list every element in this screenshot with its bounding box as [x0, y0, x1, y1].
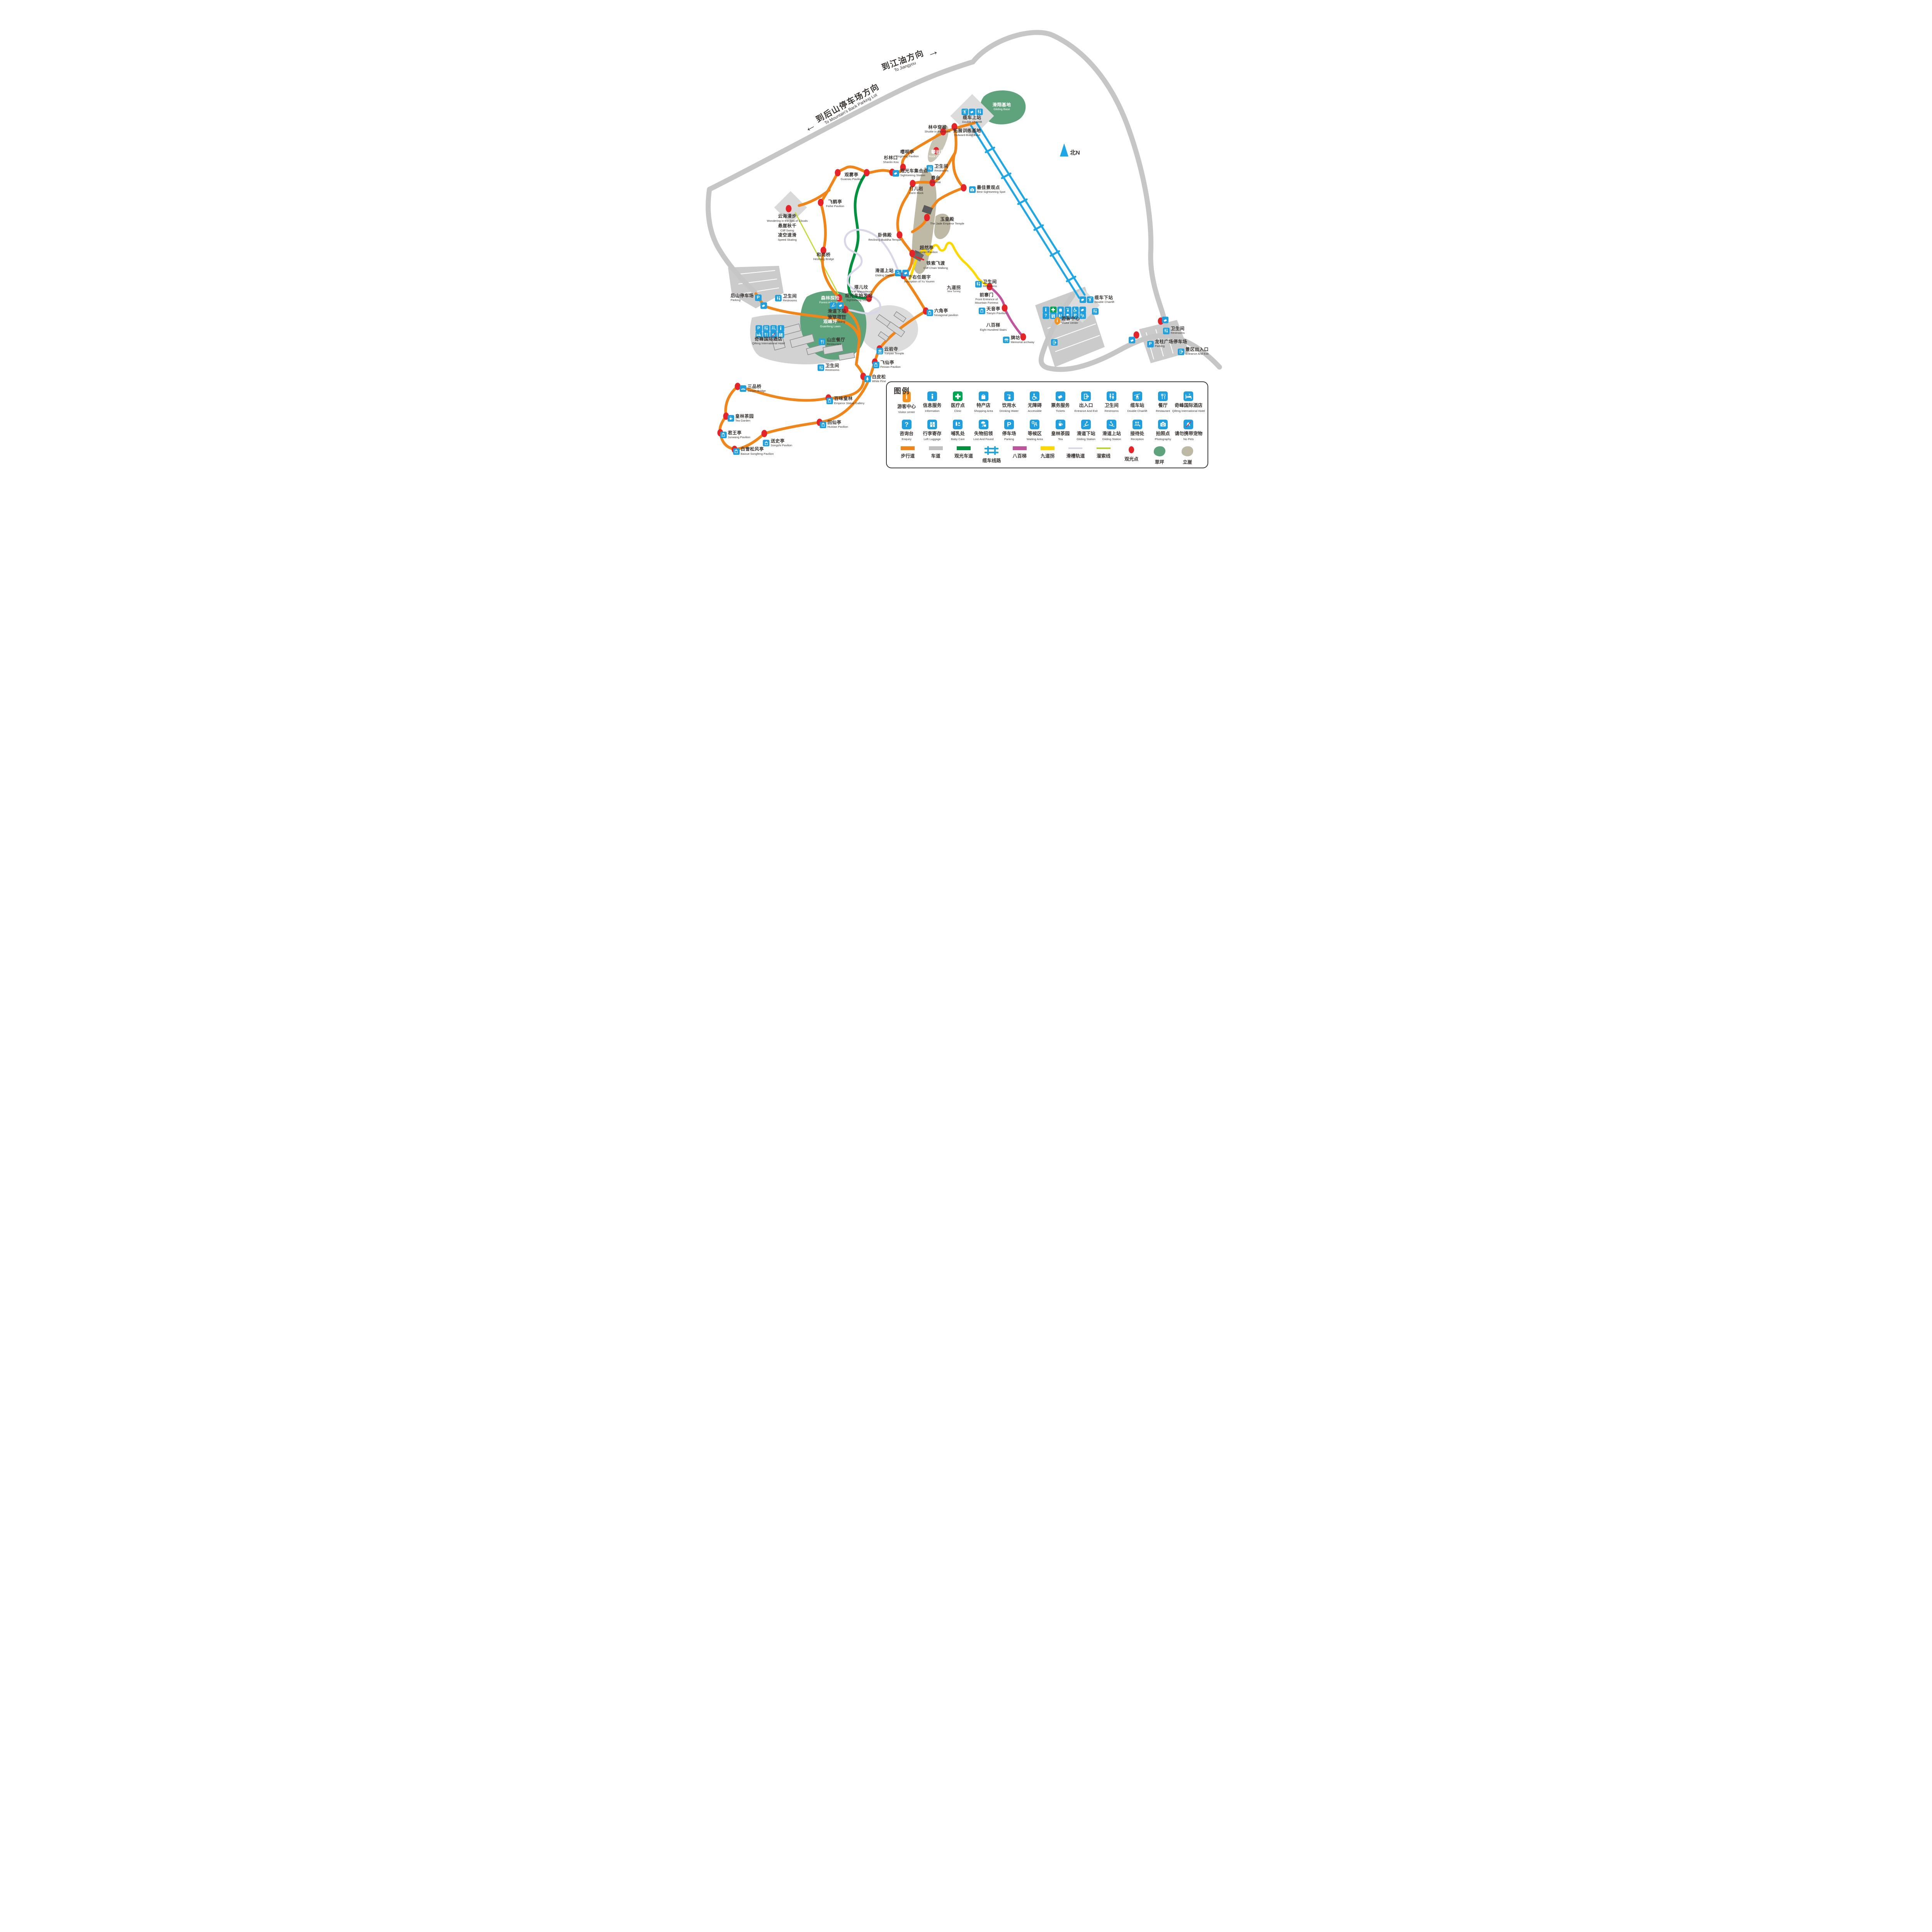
legend-item-cn: 请勿携带宠物 — [1175, 430, 1202, 437]
wc-icon — [775, 295, 782, 301]
legend-item-en: Gliding Station — [1077, 437, 1095, 441]
poi-text: 卫生间 Restrooms — [983, 280, 997, 288]
restrooms-longzhu: 卫生间 Restrooms — [1163, 327, 1185, 335]
legend-item-icon — [1133, 391, 1142, 401]
poi-icons — [775, 295, 782, 301]
legend-route-cn: 立崖 — [1183, 459, 1192, 465]
poi-label-en: Nine Turning — [947, 291, 961, 293]
poi-text: 前寨门 Front Entrance of Mountain Fortress — [975, 293, 998, 304]
poi-icons — [820, 422, 826, 428]
poi-text: 天音亭 Tianyin Pavilion — [986, 307, 1007, 315]
babycare-icon — [953, 420, 963, 429]
qifeng-international-hotel: 奇峰国际酒店 Qifeng International Hotel — [752, 337, 785, 345]
tea-garden: 皇林茶园 Tea Garden — [728, 414, 754, 423]
poi-text: 打儿岩 Da'er Rock — [909, 187, 923, 195]
poi-icons — [1003, 337, 1010, 344]
legend-drinking-water: 饮用水 Drinking Water — [996, 391, 1022, 413]
legend-item-icon — [1081, 420, 1091, 429]
legend-item-en: Entrance And Exit — [1075, 409, 1098, 413]
restrooms-nine-turning: 卫生间 Restrooms — [975, 280, 997, 288]
poi-text: 皇林茶园 Tea Garden — [735, 414, 754, 423]
legend-item-en: Left Luggage — [924, 437, 941, 441]
poi-text: 百味皇林 Emperor Statue Gallery — [834, 396, 864, 405]
pavilion-icon — [763, 440, 770, 446]
poi-label-en2: Mountain Fortress — [975, 301, 998, 305]
info-icon — [777, 325, 784, 332]
cliff-swing: 悬崖秋千 Cliff Swing — [778, 224, 796, 233]
sightseeing-spot-dot — [910, 250, 915, 257]
poi-icons — [763, 440, 770, 446]
legend-parking: P 停车场 Parking — [996, 420, 1022, 441]
feihe-pavilion: 飞鹤亭 Feihe Pavilion — [826, 200, 844, 208]
legend-item-icon — [1056, 391, 1065, 401]
legend-item-en: Double Chairlift — [1128, 409, 1147, 413]
legend-waiting-area: 等候区 Waiting Area — [1022, 420, 1048, 441]
poi-icons — [733, 448, 740, 455]
legend-accessible: 无障碍 Accessible — [1022, 391, 1048, 413]
ticket-back-parking — [760, 302, 768, 309]
poi-text: 卫生间 Restrooms — [934, 164, 948, 173]
legend-route-swatch — [1129, 446, 1134, 453]
poi-text: 和尚桥 Heshang Bridge — [813, 253, 834, 261]
clinic-icon — [953, 391, 963, 401]
poi-label-en: Cliff Chain Walking — [923, 267, 948, 270]
poi-text: 牌坊 Memorial archway — [1011, 336, 1034, 344]
longzhu-square-parking: P 龙柱广场停车场 Parking — [1147, 340, 1187, 348]
poi-icons — [720, 432, 726, 438]
poi-label-en: Outward-Bund Base — [954, 134, 980, 137]
white-pine: 白皮松 White Pine — [864, 375, 886, 383]
poi-text: 卫生间 Restrooms — [825, 364, 839, 372]
legend-item-cn: 滑道上站 — [1102, 430, 1121, 437]
poi-text: 铁索飞渡 Cliff Chain Walking — [923, 261, 948, 270]
poi-text: 飞仙亭 Feixian Pavilion — [880, 361, 901, 369]
legend-left-luggage: 行李寄存 Left Luggage — [919, 420, 945, 441]
chairlift-icon — [1087, 296, 1094, 303]
guanfeng-lawn: 观峰坪 Guanfeng Lawn — [820, 320, 840, 328]
legend-route-cn: 溜索线 — [1097, 452, 1111, 459]
poi-label-en: Qifeng International Hotel — [752, 342, 785, 345]
sightseeing-spot-dot — [835, 169, 841, 177]
legend-sightseeing-spot: 观光点 — [1117, 446, 1145, 462]
legend-item-icon: ? — [902, 420, 912, 429]
legend-route-swatch — [1041, 446, 1054, 450]
sightseeing-spot-dot — [786, 205, 792, 213]
legend-item-icon — [1030, 420, 1039, 429]
poi-icons — [1092, 308, 1099, 315]
chuntai: 春台 Chuntai — [931, 176, 941, 184]
hotel-services-row-1: P — [755, 325, 785, 332]
tianyin-pavilion: 天音亭 Tianyin Pavilion — [979, 307, 1007, 315]
inscription-of-yu-youren: 于右任题字 Inscription of Yu Youren — [904, 275, 935, 284]
poi-label-en: Yingming Pavilion — [896, 155, 918, 158]
legend-photography: 拍照点 Photography — [1150, 420, 1175, 441]
legend-item-cn: 信息服务 — [923, 402, 942, 408]
poi-label-en: Huixian Pavilion — [827, 425, 848, 429]
sanpin-bridge: 三品桥 Sanpin Bridge — [740, 384, 766, 393]
emperor-statue-gallery: 百味皇林 Emperor Statue Gallery — [827, 396, 864, 405]
legend-shopping-area: 特产店 Shopping Area — [971, 391, 996, 413]
poi-label-en: Double Chairlift — [962, 121, 982, 124]
poi-label-en: Tianyin Pavilion — [986, 312, 1007, 315]
accessible-icon — [1030, 391, 1039, 401]
entrance-icon — [1051, 339, 1058, 346]
legend-item-icon — [979, 391, 988, 401]
legend-zipline: 溜索线 — [1090, 446, 1117, 459]
outward-bund-base: 拓展训练基地 Outward-Bund Base — [953, 129, 981, 137]
legend-gliding-upper: 滑道上站 Gliding Station — [1099, 420, 1124, 441]
legend-item-en: Baby Care — [951, 437, 964, 441]
wc-icon — [1163, 328, 1170, 334]
legend-item-en: Accessible — [1028, 409, 1042, 413]
poi-label-en: Reclining Buddha Temple — [868, 238, 901, 242]
poi-label-en: Rock Climbing — [929, 155, 947, 158]
poi-label-en: Visitor center — [1061, 321, 1080, 325]
sightseeing-road-path — [849, 172, 869, 298]
poi-label-en: Restrooms — [783, 299, 797, 303]
pavilion-icon — [927, 310, 933, 316]
legend-item-en: Clinic — [954, 409, 961, 413]
legend-item-en: No Pets — [1184, 437, 1194, 441]
poi-text: 攀岩场 Rock Climbing — [929, 150, 947, 158]
poi-label-en: Sightseeing Station — [900, 174, 928, 178]
legend: 图例 i 游客中心 Visitor center 信息服务 Informatio… — [886, 381, 1208, 468]
poi-label-en: Da'er Rock — [909, 192, 923, 195]
poi-text: 奇峰国际酒店 Qifeng International Hotel — [752, 337, 785, 345]
legend-item-en: Shopping Area — [974, 409, 993, 413]
junwang-pavilion: 君王亭 Junwang Pavilion — [720, 431, 750, 439]
double-chairlift-lower: 缆车下站 Double Chairlift — [1080, 296, 1114, 304]
reclining-buddha-temple: 卧佛殿 Reclining Buddha Temple — [868, 233, 901, 241]
poi-icons — [1129, 337, 1135, 344]
legend-restrooms: 卫生间 Restrooms — [1099, 391, 1124, 413]
poi-icons — [872, 362, 879, 368]
temple-icon — [876, 348, 883, 354]
wc-icon — [1092, 308, 1099, 315]
entrance-icon — [1178, 349, 1184, 355]
gliding-base: 滑翔基地 Gliding Base — [993, 103, 1011, 111]
legend-item-icon — [953, 391, 963, 401]
pavilion-icon — [827, 398, 833, 404]
front-entrance-fortress: 前寨门 Front Entrance of Mountain Fortress — [975, 293, 998, 304]
legend-item-en: Enquiry — [901, 437, 911, 441]
songshi-pavilion: 送史亭 Songshi Pavilion — [763, 439, 792, 447]
north-arrow-icon — [1060, 143, 1068, 156]
legend-route-swatch — [1154, 446, 1165, 456]
poi-label-en: Sanpin Bridge — [748, 389, 766, 393]
glidingup-icon — [895, 270, 902, 276]
sea-of-clouds-walk: 云海漫步 Wondering in the Sea of Clouds — [767, 214, 808, 223]
poi-label-en: Shanlin Kou — [883, 161, 898, 165]
memorial-archway: 牌坊 Memorial archway — [1003, 336, 1034, 344]
entrance-icon — [1081, 391, 1091, 401]
gliding-icon — [1081, 420, 1091, 429]
north-indicator: 北N — [1060, 143, 1080, 156]
ticket-icon — [893, 170, 899, 177]
legend-route-swatch — [901, 446, 915, 450]
legend-item-en: Drinking Water — [1000, 409, 1019, 413]
hexagonal-pavilion: 六角亭 hexagonal pavilion — [927, 309, 958, 317]
legend-item-cn: 奇峰国际酒店 — [1175, 402, 1202, 408]
restaurant-icon — [819, 339, 825, 345]
poi-text: 六角亭 hexagonal pavilion — [934, 309, 958, 317]
legend-nine-turning: 九道拐 — [1034, 446, 1061, 459]
poi-label-en: Restrooms — [934, 169, 948, 173]
legend-item-en: Visitor center — [898, 410, 915, 414]
best-sightseeing-spot: 最佳景观点 Best Sightseeing Spot — [969, 185, 1005, 194]
shopping-icon — [979, 391, 988, 401]
legend-tickets: 票务服务 Tickets — [1048, 391, 1073, 413]
legend-item-cn: 无障碍 — [1028, 402, 1042, 408]
ticket-longzhu-west — [1129, 337, 1136, 344]
chairlift-icon — [1133, 391, 1142, 401]
poi-text: 白皮松 White Pine — [872, 375, 886, 383]
poi-icons — [961, 109, 983, 115]
legend-item-en: Photography — [1155, 437, 1171, 441]
glidingup-icon — [1107, 420, 1116, 429]
north-label: 北N — [1070, 148, 1080, 156]
poi-text: 白雪松风亭 Baixue Songfeng Pavilion — [741, 447, 774, 456]
poi-label-en: Junwang Pavilion — [728, 436, 750, 439]
legend-route-cn: 八百梯 — [1013, 452, 1027, 459]
poi-label-en: Feihe Pavilion — [826, 205, 844, 208]
poi-text: 景区出入口 Entrance And Exit — [1185, 347, 1209, 356]
poi-label-en: Emperor Statue Gallery — [834, 402, 864, 405]
legend-enquiry: ? 咨询台 Enquiry — [894, 420, 919, 441]
poi-icons — [1163, 328, 1170, 334]
legend-item-cn: 哺乳处 — [951, 430, 965, 437]
legend-item-en: Tickets — [1056, 409, 1065, 413]
archway-icon — [1003, 337, 1010, 344]
parking-icon: P — [1004, 420, 1014, 429]
poi-icons: P — [755, 294, 762, 301]
ticket-icon — [837, 302, 844, 309]
restaurant-icon — [1158, 391, 1168, 401]
poi-icons — [927, 310, 933, 316]
ticket-icon — [760, 302, 767, 309]
legend-item-icon — [1158, 391, 1168, 401]
legend-route-swatch — [1013, 446, 1027, 450]
ticket-icon — [969, 109, 975, 115]
legend-services-row-1: i 游客中心 Visitor center 信息服务 Information 医… — [894, 391, 1201, 414]
legend-chute-track: 滑槽轨道 — [1061, 446, 1089, 459]
poi-label-en: Memorial archway — [1011, 341, 1034, 344]
legend-sightseeing-road: 观光车道 — [950, 446, 978, 459]
legend-reception: 接待处 Reception — [1124, 420, 1150, 441]
poi-icons — [819, 339, 825, 345]
legend-item-icon — [1133, 420, 1142, 429]
legend-route-cn: 缆车线路 — [982, 457, 1001, 464]
parking-icon: P — [755, 294, 762, 301]
poi-label-en: Entrance And Exit — [1185, 353, 1209, 356]
poi-icons — [827, 398, 833, 404]
legend-item-icon — [953, 420, 963, 429]
sightseeing-spot-dot — [818, 199, 824, 206]
poi-icons — [864, 376, 871, 382]
poi-label-en: Double Chairlift — [1095, 301, 1114, 304]
poi-text: 缆车上站 Double Chairlift — [962, 116, 982, 124]
poi-text: 玉皇殿 The Jade Emperor Temple — [930, 217, 964, 226]
legend-route-swatch — [929, 446, 943, 450]
legend-item-en: Tea — [1058, 437, 1063, 441]
wc-icon — [975, 281, 982, 287]
yingming-pavilion: 嘤明亭 Yingming Pavilion — [896, 150, 918, 158]
poi-icons: i — [1054, 317, 1060, 325]
legend-route-cn: 滑槽轨道 — [1066, 452, 1085, 459]
legend-no-pets: 请勿携带宠物 No Pets — [1176, 420, 1201, 441]
legend-qifeng-hotel: 奇峰国际酒店 Qifeng International Hotel — [1176, 391, 1201, 413]
poi-text: 云海漫步 Wondering in the Sea of Clouds — [767, 214, 808, 223]
legend-clinic: 医疗点 Clinic — [945, 391, 971, 413]
poi-label-en: Feixian Pavilion — [880, 366, 901, 369]
cliff-chain-walking: 铁索飞渡 Cliff Chain Walking — [923, 261, 948, 270]
legend-item-en: Lost And Found — [973, 437, 994, 441]
poi-label-en: Restrooms — [1171, 332, 1185, 335]
poi-icons — [979, 308, 985, 314]
poi-text: 春台 Chuntai — [931, 176, 941, 184]
legend-lawn: 草坪 — [1145, 446, 1173, 465]
legend-item-cn: 等候区 — [1028, 430, 1042, 437]
legend-cliff: 立崖 — [1173, 446, 1201, 465]
scenic-area-map: 到江油方向 To Jiangyou → ← 到后山停车场方向 To Mounta… — [663, 0, 1269, 486]
yunyan-temple: 云岩寺 Yunyan Temple — [876, 347, 904, 355]
huixian-pavilion: 回仙亭 Huixian Pavilion — [820, 420, 848, 429]
poi-label-en: Inscription of Yu Youren — [904, 280, 935, 284]
poi-label-en: Eight Hundred Stairs — [980, 328, 1007, 332]
legend-item-cn: 卫生间 — [1105, 402, 1119, 408]
poi-text: 九道拐 Nine Turning — [947, 286, 961, 293]
legend-item-en: Gliding Station — [1102, 437, 1121, 441]
restrooms-visitor-center — [1092, 308, 1100, 315]
poi-label-cn: 九道拐 — [947, 286, 961, 291]
wc-icon — [976, 109, 983, 115]
legend-route-cn: 草坪 — [1155, 459, 1164, 465]
legend-item-icon — [979, 420, 988, 429]
poi-text: 卫生间 Restrooms — [1171, 327, 1185, 335]
sightseeing-spot-dot — [762, 430, 767, 437]
poi-text: 最佳景观点 Best Sightseeing Spot — [977, 185, 1005, 194]
restrooms-back-parking: 卫生间 Restrooms — [775, 294, 797, 303]
legend-item-cn: 医疗点 — [951, 402, 965, 408]
shanlin-kou: 杉林口 Shanlin Kou — [883, 156, 898, 164]
visitor-center: i 游客中心 Visitor center — [1054, 316, 1080, 325]
poi-text: 君王亭 Junwang Pavilion — [728, 431, 750, 439]
visitor-icon: i — [1054, 317, 1060, 325]
legend-services-row-2: ? 咨询台 Enquiry 行李寄存 Left Luggage 哺乳处 Baby… — [894, 420, 1201, 441]
enquiry-icon: ? — [902, 420, 912, 429]
sightseeing-spot-dot — [924, 214, 930, 221]
lostfound-icon — [979, 420, 988, 429]
legend-route-cn: 车道 — [931, 452, 940, 459]
poi-label-en: Tea Garden — [735, 419, 754, 423]
legend-route-swatch — [985, 446, 998, 455]
legend-item-cn: 失物招领 — [974, 430, 993, 437]
luggage-icon — [927, 420, 937, 429]
poi-label-en: Gliding Base — [993, 108, 1010, 111]
legend-route-swatch — [1182, 446, 1193, 456]
poi-text: 观光车集合点 Sightseeing Station — [900, 169, 928, 177]
enquiry-icon: ? — [1043, 313, 1049, 319]
poi-label-en: Chuntai — [931, 181, 941, 184]
parking-icon: P — [1147, 341, 1154, 347]
legend-gliding-lower: 滑道下站 Gliding Station — [1073, 420, 1099, 441]
poi-icons — [969, 187, 976, 193]
legend-item-en: Qifeng International Hotel — [1172, 409, 1205, 413]
legend-route-swatch — [1068, 447, 1082, 449]
poi-icons: P — [1147, 341, 1154, 347]
double-chairlift-upper: 缆车上站 Double Chairlift — [961, 109, 983, 124]
poi-text: 观雾亭 Guanwu Pavilion — [840, 173, 862, 181]
poi-text: 观光车始发站 Sightseeing Station — [845, 294, 872, 302]
poi-text: 后山停车场 Parking — [731, 294, 754, 302]
poi-text: 超然亭 Chaoran Pavilion — [916, 246, 938, 254]
poi-label-en: Guanwu Pavilion — [840, 178, 862, 182]
pavilion-icon — [979, 308, 985, 314]
legend-item-cn: 出入口 — [1079, 402, 1093, 408]
guanwu-pavilion: 观雾亭 Guanwu Pavilion — [840, 173, 862, 181]
poi-icons — [1080, 296, 1094, 303]
legend-item-icon — [1030, 391, 1039, 401]
speed-skating: 凌空速滑 Speed Skating — [778, 233, 797, 241]
poi-text: 回仙亭 Huixian Pavilion — [827, 420, 848, 429]
tea-icon — [1056, 420, 1065, 429]
ticket-icon — [1080, 296, 1086, 303]
reception-icon — [1133, 420, 1142, 429]
poi-text: 山庄餐厅 Restaurant — [827, 338, 845, 346]
legend-eight-hundred-stairs: 八百梯 — [1006, 446, 1034, 459]
wc-icon — [818, 364, 824, 371]
taer-mausoleum: 塔儿坟 Ta'er Mausoleum — [850, 285, 872, 294]
poi-label-en: Guanfeng Lawn — [820, 325, 840, 328]
poi-icons — [893, 170, 899, 177]
poi-icons — [876, 348, 883, 354]
hotel-icon — [1184, 391, 1193, 401]
parking-icon: P — [755, 325, 762, 332]
legend-item-cn: 游客中心 — [897, 403, 916, 410]
legend-item-icon — [1107, 391, 1116, 401]
legend-route-swatch — [1097, 447, 1111, 449]
legend-walkway: 步行道 — [894, 446, 922, 459]
poi-text: 龙柱广场停车场 Parking — [1155, 340, 1187, 348]
poi-text: 缆车下站 Double Chairlift — [1095, 296, 1114, 304]
photography-icon — [969, 187, 976, 193]
pine-icon — [864, 376, 871, 382]
legend-routes-row: 步行道 车道 观光车道 缆车线路 八百梯 九道拐 — [894, 446, 1201, 465]
poi-label-en: Speed Skating — [778, 238, 797, 242]
legend-route-cn: 九道拐 — [1041, 452, 1054, 459]
poi-text: 送史亭 Songshi Pavilion — [771, 439, 792, 447]
water-icon — [1004, 391, 1014, 401]
poi-label-en: Gliding Station — [875, 274, 894, 277]
legend-item-cn: 缆车站 — [1130, 402, 1144, 408]
legend-item-en: Restrooms — [1105, 409, 1119, 413]
poi-label-en: Yunyan Temple — [884, 352, 904, 355]
legend-item-icon: P — [1004, 420, 1014, 429]
legend-item-cn: 拍照点 — [1156, 430, 1170, 437]
shuttle-in-the-forest: 林中穿梭 Shuttle in the Forest — [925, 125, 951, 134]
poi-text: 于右任题字 Inscription of Yu Youren — [904, 275, 935, 284]
legend-item-cn: 饮用水 — [1002, 402, 1016, 408]
poi-text: 林中穿梭 Shuttle in the Forest — [925, 125, 951, 134]
poi-label-en: Restrooms — [825, 369, 839, 372]
daer-rock: 打儿岩 Da'er Rock — [909, 187, 923, 195]
photography-icon — [1158, 420, 1168, 429]
chaoran-pavilion: 超然亭 Chaoran Pavilion — [916, 246, 938, 254]
legend-item-en: Restaurant — [1156, 409, 1170, 413]
legend-lost-and-found: 失物招领 Lost And Found — [971, 420, 996, 441]
poi-label-en: Heshang Bridge — [813, 258, 834, 261]
tea-icon — [728, 415, 734, 422]
